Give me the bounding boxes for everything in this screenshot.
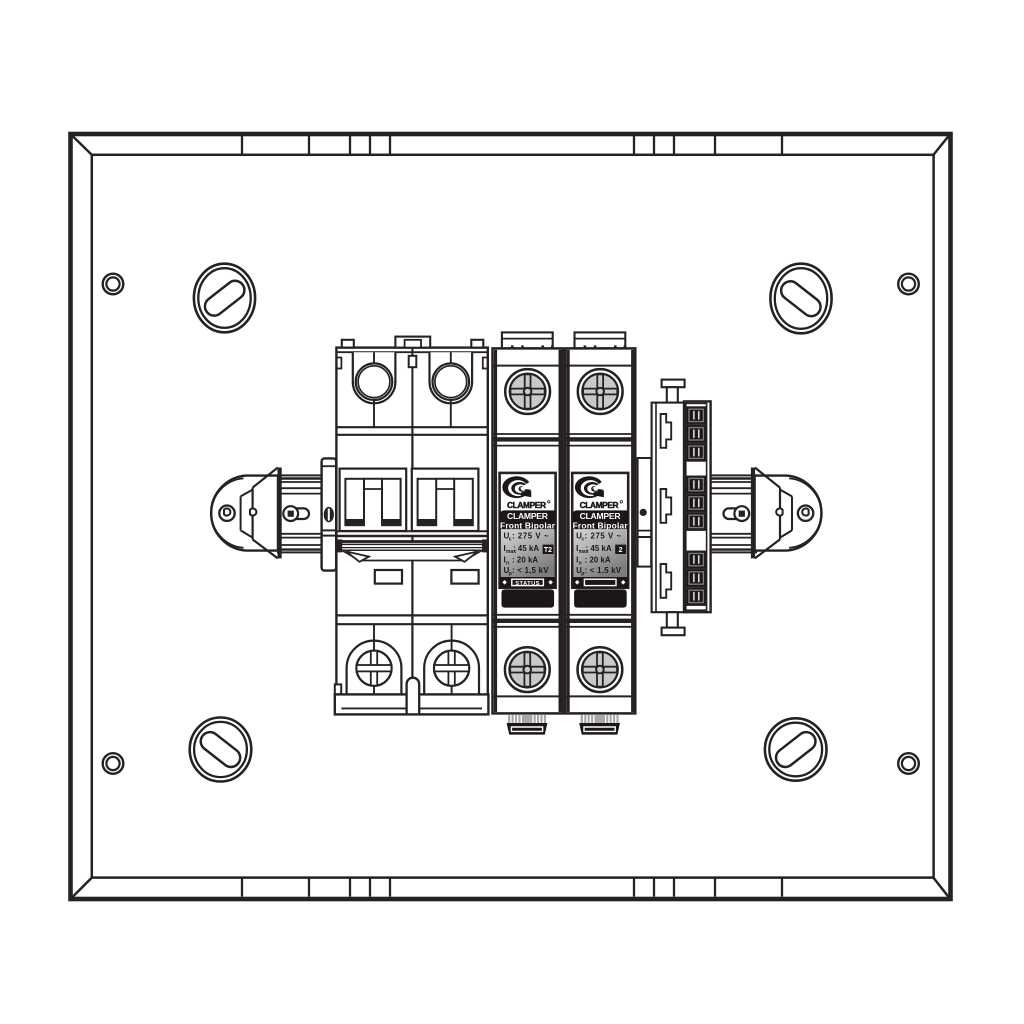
svg-text:Front Bipolar: Front Bipolar	[573, 520, 629, 530]
svg-text:: 275 V ~: : 275 V ~	[585, 532, 622, 541]
svg-text:2: 2	[619, 547, 623, 554]
svg-text:STATUS: STATUS	[515, 581, 540, 587]
svg-text:: 275 V ~: : 275 V ~	[512, 532, 549, 541]
svg-text:: 45 kA: : 45 kA	[586, 544, 612, 553]
svg-text:Front Bipolar: Front Bipolar	[500, 520, 556, 530]
svg-text:: 45 kA: : 45 kA	[513, 544, 539, 553]
svg-text:CLAMPER: CLAMPER	[580, 500, 619, 510]
svg-text:: < 1,5 kV: : < 1,5 kV	[512, 566, 549, 575]
svg-text:: 20 kA: : 20 kA	[512, 556, 538, 565]
svg-text:: 20 kA: : 20 kA	[585, 556, 611, 565]
svg-text:T2: T2	[544, 547, 552, 554]
svg-text:CLAMPER: CLAMPER	[507, 500, 546, 510]
svg-text:: < 1,5 kV: : < 1,5 kV	[585, 566, 622, 575]
